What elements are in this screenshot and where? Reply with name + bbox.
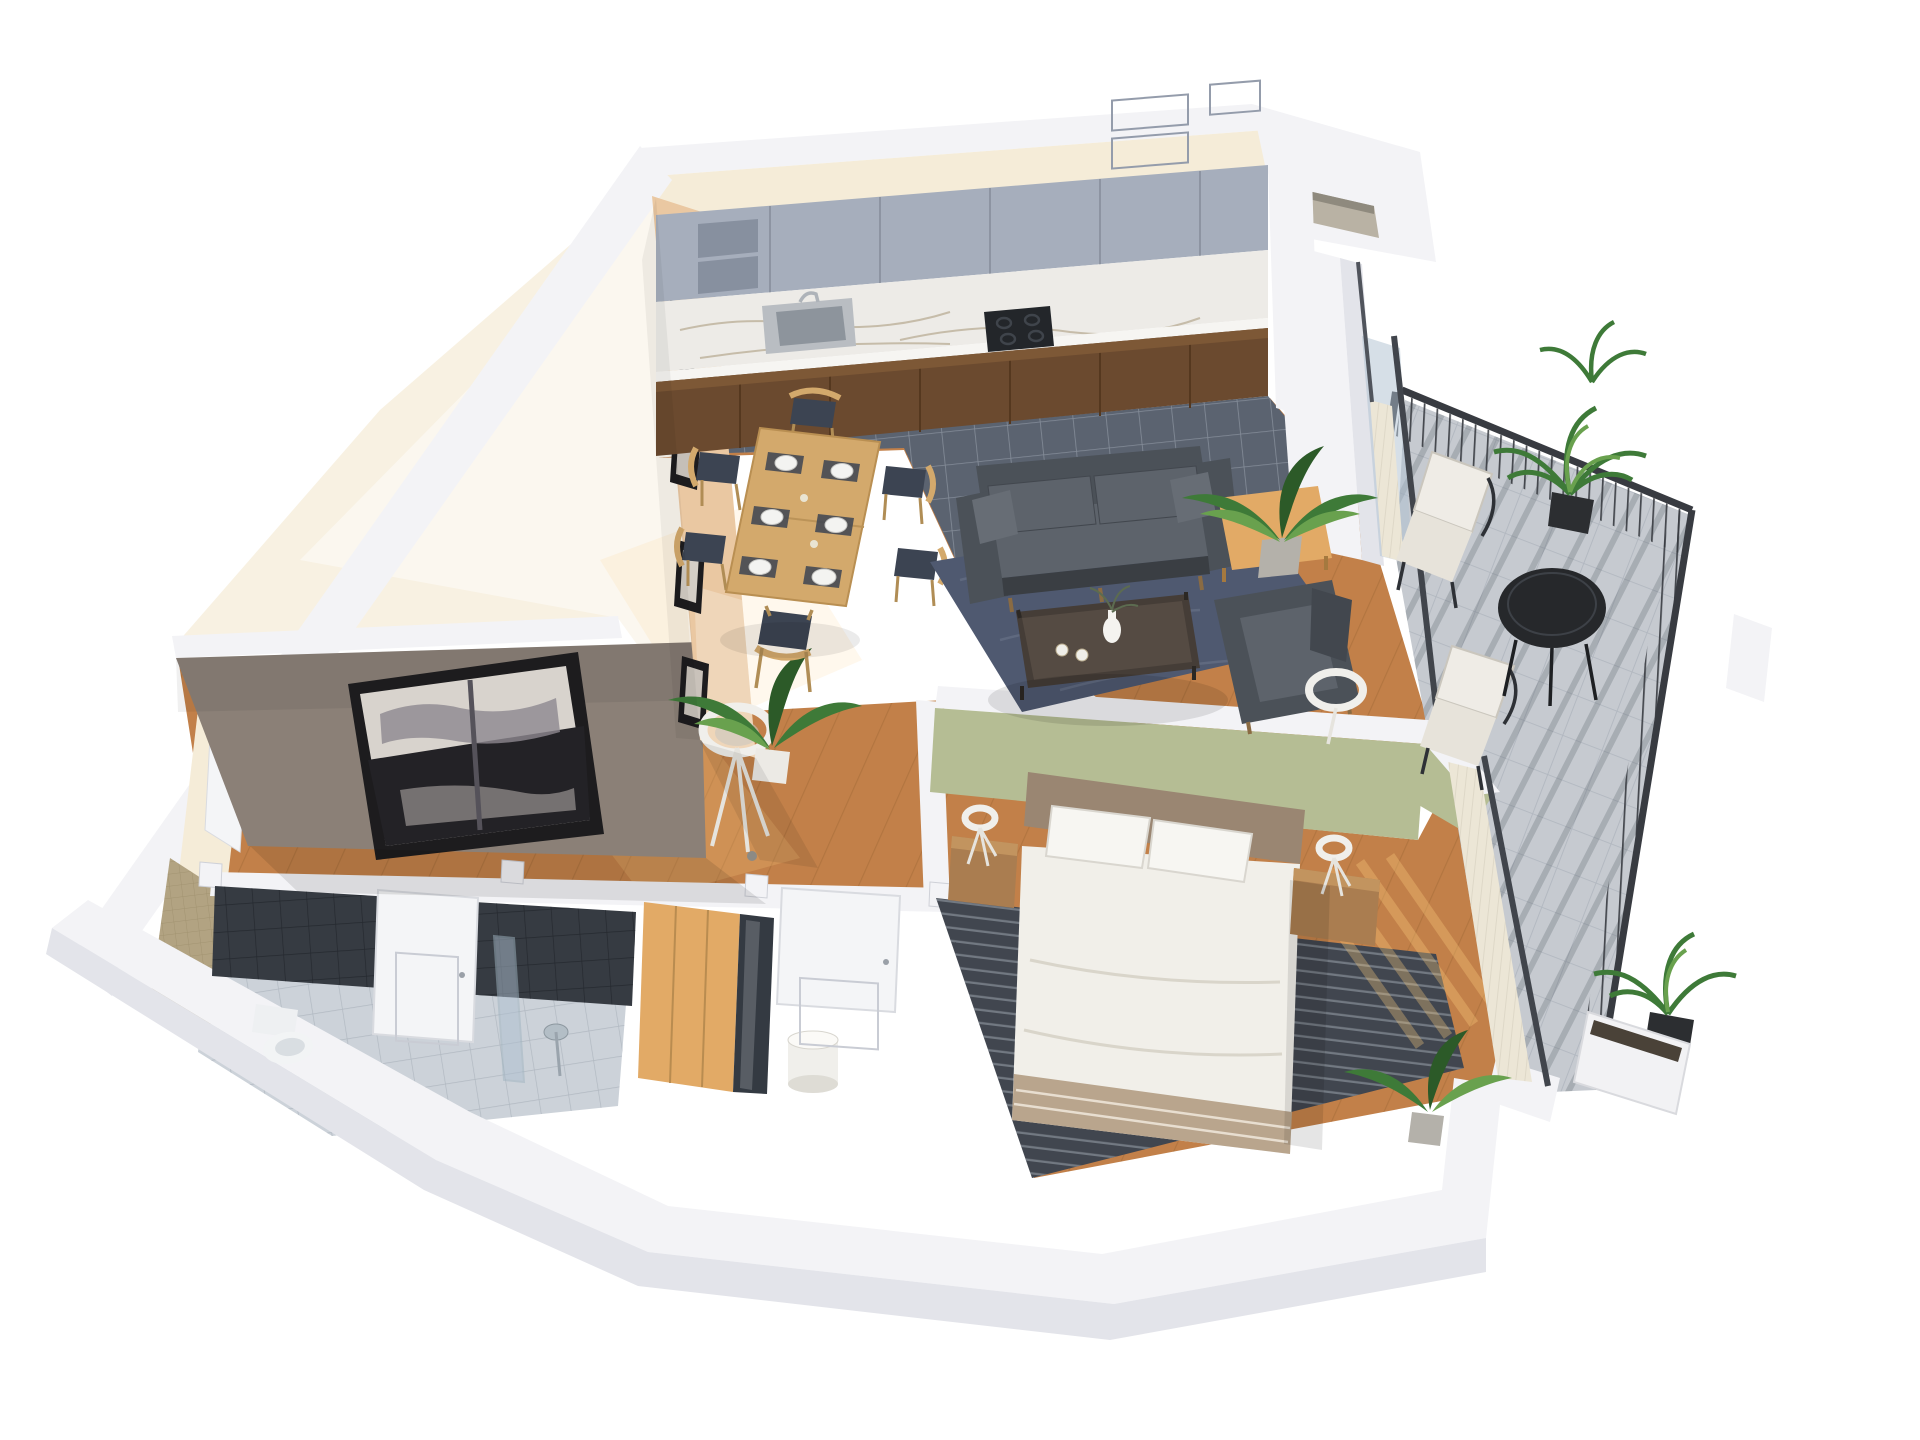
armchair-back [1310, 588, 1352, 662]
open-shelf-upper [698, 219, 758, 258]
shadow-bed [1284, 880, 1330, 1150]
glass-1 [800, 494, 808, 502]
floor-lamp-foot [747, 851, 757, 861]
hall-door-handle [883, 959, 889, 965]
balcony-divider-panel [1726, 614, 1772, 702]
sink-basin [776, 306, 846, 346]
bathroom-door-handle [459, 972, 465, 978]
shadow-dining [720, 622, 860, 658]
hall-door [777, 888, 900, 1012]
floorplan-render [0, 0, 1920, 1440]
cylinder-table-lamp [788, 1031, 838, 1093]
apartment-scene [0, 0, 1920, 1440]
glass-2 [810, 540, 818, 548]
cup-2 [1076, 649, 1088, 661]
bedroom-plant-pot [1408, 1112, 1444, 1146]
jamb-4 [199, 862, 222, 888]
abstract-painting [348, 652, 604, 860]
living-plant-pot [1258, 536, 1302, 578]
induction-hob [984, 306, 1054, 352]
wardrobe-wood-door [638, 902, 740, 1092]
bathroom-door [373, 890, 478, 1042]
cup-1 [1056, 644, 1068, 656]
shadow-coffee-table [988, 674, 1228, 726]
lamp-bottom [788, 1075, 838, 1093]
bed-pillow-1 [1046, 806, 1150, 868]
open-shelf-lower [698, 256, 758, 294]
